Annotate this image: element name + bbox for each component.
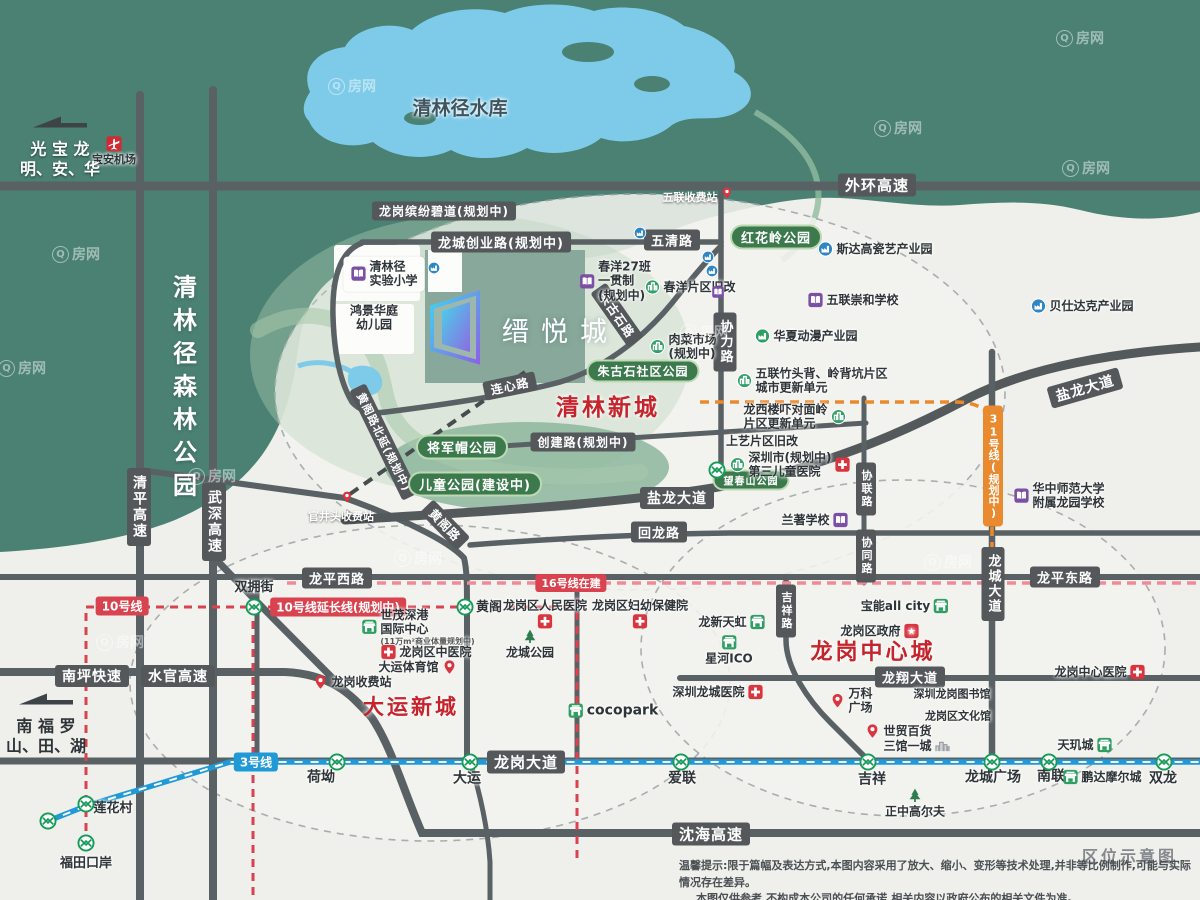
- renew-icon: [649, 339, 665, 355]
- poi-label: 深圳龙城医院: [672, 684, 763, 700]
- poi-label: 斯达高瓷艺产业园: [817, 241, 932, 257]
- renew-icon: [730, 457, 746, 473]
- poi-label: 龙西楼吓对面岭片区更新单元: [743, 403, 846, 432]
- metro-station-icon: [462, 754, 479, 771]
- poi-label: 龙岗中心医院: [1054, 664, 1145, 680]
- tree-icon: [907, 787, 923, 803]
- map-text: 鸿景华庭幼儿园: [350, 304, 398, 333]
- map-text: 龙城广场: [965, 770, 1021, 787]
- poi-label: 深圳市(规划中)第三儿童医院: [730, 451, 851, 480]
- ind-icon: [817, 241, 833, 257]
- disclaimer: 温馨提示:限于篇幅及表达方式,本图内容采用了放大、缩小、变形等技术处理,并非等比…: [679, 858, 1200, 900]
- arrow-icon: [20, 115, 100, 140]
- road-label: 回龙路: [631, 522, 687, 543]
- metro-station-icon: [673, 754, 690, 771]
- pin-icon: [442, 659, 458, 675]
- metro-line-label: 3号线: [234, 753, 278, 772]
- poi-label: 天玑城: [1057, 737, 1112, 753]
- map-text: 五联收费站: [663, 189, 718, 205]
- metro-station-icon: [709, 462, 726, 479]
- hosp-icon: [748, 684, 764, 700]
- renew-icon: [736, 373, 752, 389]
- district-label: 大运新城: [363, 691, 459, 721]
- shop-icon: [721, 634, 737, 650]
- road-label: 龙平东路: [1030, 567, 1100, 588]
- poi-label: 龙岗区人民医院: [503, 598, 587, 629]
- direction-arrow: 光 宝 龙明、安、华: [20, 115, 100, 180]
- hosp-icon: [632, 614, 648, 630]
- map-text: 官井头收费站: [308, 508, 374, 524]
- ind-icon: [428, 262, 441, 275]
- metro-station-icon: [78, 796, 95, 813]
- map-text: 清林径森林公园: [166, 275, 201, 506]
- pin-icon: [829, 693, 845, 709]
- pin-icon: [312, 674, 328, 690]
- map-text: 南联: [1037, 769, 1065, 786]
- air-icon: [106, 136, 122, 152]
- metro-station-icon: [40, 813, 57, 830]
- project-name: 缙悦城: [502, 310, 619, 349]
- road-label: 盐龙大道: [640, 487, 714, 509]
- poi-label: 大运体育馆: [378, 659, 457, 675]
- road-label: 沈海高速: [672, 823, 750, 846]
- ind-icon: [702, 251, 715, 264]
- map-text: 双拥街: [234, 580, 273, 596]
- poi-label: 宝能all city: [861, 598, 949, 614]
- road-label: 龙翔大道: [875, 667, 945, 688]
- poi-label: 五联崇和学校: [807, 292, 898, 308]
- ind-icon: [634, 227, 647, 240]
- metro-line-label: 31号线(规划中): [983, 406, 1003, 527]
- road-label: 龙城创业路(规划中): [431, 232, 571, 253]
- poi-label: 龙岗收费站: [312, 674, 391, 690]
- ind-icon: [1030, 298, 1046, 314]
- map-labels-layer: 外环高速龙岗缤纷碧道(规划中)龙城创业路(规划中)五清路连心路朱古石路协力路盐龙…: [0, 0, 1200, 900]
- map-text: 吉祥: [858, 772, 886, 789]
- renew-icon: [831, 409, 847, 425]
- park-label: 儿童公园(建设中): [408, 472, 542, 497]
- road-label: 龙岗大道: [487, 751, 565, 774]
- poi-label: 龙岗区中医院: [380, 644, 471, 660]
- metro-station-icon: [329, 754, 346, 771]
- poi-label: 世贸百货: [864, 723, 931, 739]
- pin-icon: [721, 187, 734, 200]
- school-icon: [579, 273, 595, 289]
- shop-icon: [361, 619, 377, 635]
- map-text: 深圳龙岗图书馆: [914, 687, 991, 700]
- road-label: 协同路: [856, 530, 876, 583]
- road-label: 协联路: [856, 463, 876, 516]
- map-text: 双龙: [1149, 771, 1177, 788]
- metro-station-icon: [246, 599, 263, 616]
- road-label: 武深高速: [202, 483, 226, 561]
- road-label: 盐龙大道: [1046, 367, 1123, 409]
- poi-label: 星河ICO: [705, 634, 752, 665]
- ind-icon: [706, 265, 719, 278]
- metro-line-label: 10号线: [96, 597, 149, 616]
- hosp-icon: [1130, 664, 1146, 680]
- school-icon: [350, 266, 366, 282]
- park-label: 红花岭公园: [730, 225, 822, 250]
- map-text: 爱联: [668, 771, 696, 788]
- road-label: 创建路(规划中): [531, 433, 636, 452]
- project-logo-icon: [426, 288, 490, 370]
- map-text: 福田口岸: [60, 856, 112, 872]
- road-label: 外环高速: [838, 174, 916, 197]
- poi-label: 华中师范大学附属龙园学校: [1013, 482, 1104, 511]
- shop-icon: [1062, 769, 1078, 785]
- gov-icon: ★: [904, 623, 920, 639]
- poi-label: 肉菜市场(规划中): [649, 333, 716, 362]
- shop-icon: [1097, 737, 1113, 753]
- map-text: 莲花村: [93, 801, 132, 817]
- hosp-icon: [834, 457, 850, 473]
- poi-label: 万科广场: [829, 687, 872, 716]
- pin-icon: [341, 491, 354, 504]
- poi-label: 贝仕达克产业园: [1030, 298, 1133, 314]
- poi-label: 华夏动漫产业园: [754, 328, 857, 344]
- map-text: 大运: [453, 771, 481, 788]
- disclaimer-line1: 温馨提示:限于篇幅及表达方式,本图内容采用了放大、缩小、变形等技术处理,并非等比…: [679, 858, 1200, 891]
- map-text: 上艺片区旧改: [726, 434, 798, 448]
- poi-label: cocopark: [568, 703, 659, 720]
- poi-label: 鹏达摩尔城: [1062, 769, 1141, 785]
- road-label: 南坪快速: [55, 665, 129, 687]
- disclaimer-line2: 本图仅供参考,不构成本公司的任何承诺,相关内容以政府公布的相关文件为准。: [696, 891, 1200, 900]
- road-label: 五清路: [644, 230, 700, 251]
- hosp-icon: [537, 614, 553, 630]
- school-icon: [807, 292, 823, 308]
- arrow-icon: [6, 692, 86, 717]
- hosp-icon: [380, 644, 396, 660]
- metro-station-icon: [984, 754, 1001, 771]
- metro-station-icon: [1156, 754, 1173, 771]
- poi-label: 龙岗区政府★: [840, 623, 919, 639]
- shop-icon: [568, 703, 584, 719]
- school-icon: [1013, 488, 1029, 504]
- park-label: 将军帽公园: [416, 435, 508, 460]
- poi-label: 龙岗区妇幼保健院: [592, 598, 688, 629]
- school-icon: [833, 512, 849, 528]
- pin-icon: [864, 723, 880, 739]
- metro-station-icon: [78, 835, 95, 852]
- poi-label: 清林径实验小学: [343, 257, 424, 292]
- map-text: 荷坳: [307, 770, 335, 787]
- ind2-icon: [754, 328, 770, 344]
- school-icon: [712, 286, 725, 299]
- poi-label: 三馆一城: [883, 738, 950, 754]
- poi-label: 龙新天虹: [698, 614, 765, 630]
- road-label: 黄阁路: [420, 499, 470, 550]
- district-label: 清林新城: [556, 388, 660, 422]
- renew-icon: [644, 279, 660, 295]
- metro-station-icon: [860, 754, 877, 771]
- map-text: 清林径水库: [412, 98, 507, 121]
- poi-label: 正中高尔夫: [885, 787, 945, 818]
- metro-station-icon: [1041, 754, 1058, 771]
- road-label: 协力路: [714, 313, 737, 372]
- tree-icon: [522, 628, 538, 644]
- map-text: 龙岗区文化馆: [925, 709, 991, 722]
- poi-label: 五联竹头背、岭背坑片区城市更新单元: [736, 367, 887, 396]
- poi-label: 兰著学校: [781, 512, 848, 528]
- direction-arrow: 南 福 罗山、田、湖: [6, 692, 86, 757]
- road-label: 龙岗缤纷碧道(规划中): [372, 202, 516, 221]
- bld-icon: [935, 738, 951, 754]
- shop-icon: [750, 614, 766, 630]
- shop-icon: [933, 598, 949, 614]
- location-map: 外环高速龙岗缤纷碧道(规划中)龙城创业路(规划中)五清路连心路朱古石路协力路盐龙…: [0, 0, 1200, 900]
- road-label: 水官高速: [141, 665, 215, 687]
- svg-text:★: ★: [907, 627, 916, 638]
- road-label: 连心路: [482, 371, 538, 401]
- project-logo: 缙悦城: [426, 288, 619, 370]
- road-label: 清平高速: [127, 468, 151, 546]
- road-label: 龙平西路: [302, 568, 372, 589]
- metro-line-label: 16号线在建: [535, 574, 606, 592]
- road-label: 龙城大道: [982, 547, 1005, 621]
- map-text: 黄阁: [476, 600, 502, 616]
- road-label: 吉祥路: [776, 585, 796, 638]
- poi-label: 龙城公园: [506, 628, 554, 659]
- metro-station-icon: [457, 599, 474, 616]
